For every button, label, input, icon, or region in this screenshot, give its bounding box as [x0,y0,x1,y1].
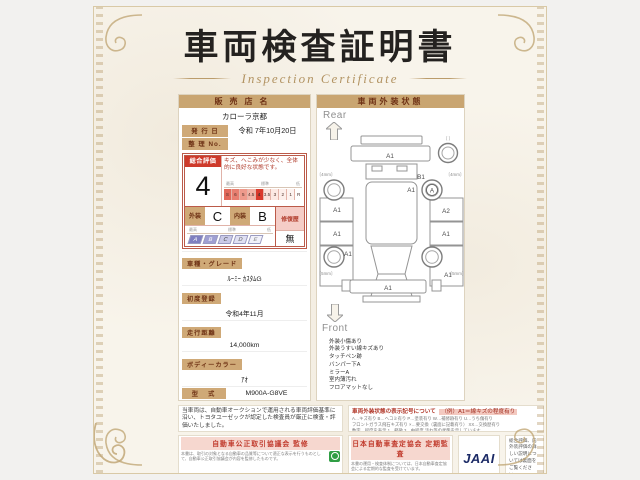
ext-int-grades: 外装 C 内装 B 最高 標準 低 [185,207,275,246]
legend-header: 車両外装状態の表示記号について （例）A1＝線キズの程度有り [352,407,540,415]
field-row-model-code: 型 式 M900A-G8VE [182,386,307,401]
corner-flourish-icon [496,423,542,469]
ornate-border-left [96,7,103,473]
evaluation-bottom: 外装 C 内装 B 最高 標準 低 [185,206,304,246]
jaai-text-row: 本書の運用・検査体制については、日本自動車査定協会による定期的な監査を受けていま… [351,461,450,473]
subtitle-row: Inspection Certificate [94,71,546,87]
fair-trade-council-block: 自動車公正取引協議会 監修 本書は、取引の対象となる自動車の品質等について適正な… [178,435,343,475]
front-label: Front [322,323,348,334]
grade-scale-cell: R [294,189,302,200]
diagram-marker: A1 [386,153,394,160]
letter-scale-cell: C [218,235,234,244]
exterior-note: タッチペン跡 [329,354,384,362]
field-label: ボディーカラー [182,359,242,370]
field-value: ｱｵ [182,374,307,384]
overall-grade-cell: 総合評価 4 [185,156,222,206]
issue-date-value: 令和 7年10月20日 [228,126,307,136]
scale-label-high: 最高 [189,227,197,233]
jaai-logo: JAAI [463,451,495,466]
headrest-shape [397,166,407,171]
exterior-note: バンパー下A [329,362,384,370]
evaluation-detail: キズ、へこみが少なく、全体的に良好な状態です。 最高 標準 低 S 6 5 4.… [222,156,304,206]
bottom-row-2: 自動車公正取引協議会 監修 本書は、取引の対象となる自動車の品質等について適正な… [178,435,544,475]
jaai-logo-box: JAAI [458,435,500,475]
scale-label-low: 低 [267,227,271,233]
corner-flourish-icon [98,11,144,57]
grade-scale-labels: 最高 標準 低 [224,181,302,188]
field-label: 型 式 [182,388,226,399]
grade-scale: S 6 5 4.5 4 3.5 3 2 1 R [224,189,302,200]
rear-label: Rear [323,110,347,121]
grade-scale-cell: S [224,189,231,200]
field-value: 令和4年11月 [182,308,307,318]
exterior-header: 車両外装状態 [317,95,464,108]
grade-scale-cell: 5 [239,189,247,200]
windshield-shape [371,246,412,274]
diagram-marker: A1 [407,187,415,194]
interior-grade: B [250,207,275,225]
dealer-header: 販売店名 [179,95,310,108]
diagram-marker: A1 [442,231,450,238]
letter-scale-cell: B [203,235,219,244]
car-top-view-svg: A1 〔 〕 〔4mm〕 〔4mm〕 B1 A1 A A2 A1 A1 A1 A… [317,134,465,318]
council-text-row: 本書は、取引の対象となる自動車の品質等について適正な表示を行うものとして、自動車… [181,451,340,463]
car-diagram: Rear [317,108,464,401]
page-subtitle: Inspection Certificate [231,71,408,87]
scale-label-mid: 標準 [261,181,269,187]
diagram-marker: A2 [442,208,450,215]
jaai-text: 本書の運用・検査体制については、日本自動車査定協会による定期的な監査を受けていま… [351,461,450,473]
dealer-name: カローラ京都 [179,108,310,124]
ext-int-row: 外装 C 内装 B [185,207,275,226]
green-seal-icon [329,451,340,462]
field-label: 初度登録 [182,293,221,304]
panels-row: 販売店名 カローラ京都 発 行 日 令和 7年10月20日 整 理 No. 総合… [94,94,546,401]
exterior-note: フロアマットなし [329,385,384,393]
exterior-condition-panel: 車両外装状態 Rear [316,94,465,401]
letter-scale: A B C D E [187,235,273,244]
repair-history-cell: 修復歴 無 [275,207,304,246]
repair-history-label: 修復歴 [276,207,304,230]
interior-label: 内装 [230,207,250,225]
field-label: 車種・グレード [182,258,242,269]
subtitle-ornament-left [173,78,231,79]
diagram-marker: A1 [384,285,392,292]
field-label: 走行距離 [182,327,221,338]
front-bumper-end-shape [432,280,441,291]
field-value: M900A-G8VE [226,390,307,397]
evaluation-box-inner: 総合評価 4 キズ、へこみが少なく、全体的に良好な状態です。 最高 標準 低 [184,155,305,247]
field-row-model-grade: 車種・グレード ﾙｰﾐｰ ｶｽﾀﾑG [182,251,307,286]
letter-scale-cell: A [188,235,204,244]
legend-example: （例）A1＝線キズの程度有り [439,409,517,415]
repair-history-value: 無 [276,230,304,246]
exterior-note: 外装うすい線キズあり [329,346,384,354]
roof-shape [361,136,422,144]
arrow-down-icon [327,304,343,322]
grade-scale-cell-selected: 4 [255,189,263,200]
evaluation-top: 総合評価 4 キズ、へこみが少なく、全体的に良好な状態です。 最高 標準 低 [185,156,304,206]
exterior-label: 外装 [185,207,205,225]
field-value: ﾙｰﾐｰ ｶｽﾀﾑG [182,273,307,283]
diagram-marker: 〔4mm〕 [446,172,465,177]
ref-no-label: 整 理 No. [182,138,228,150]
field-value: 14,000km [182,342,307,349]
front-lower-bar-shape [363,296,420,302]
grade-scale-cell: 2 [278,189,286,200]
issue-date-label: 発 行 日 [182,125,228,137]
vehicle-fields: 車種・グレード ﾙｰﾐｰ ｶｽﾀﾑG 初度登録 令和4年11月 走行距離 14,… [179,251,310,401]
page-title: 車両検査証明書 [94,29,546,68]
legend-title: 車両外装状態の表示記号について [352,409,436,415]
swirl-flourish-icon [93,421,128,469]
field-row-first-registration: 初度登録 令和4年11月 [182,285,307,320]
diagram-marker: B1 [417,174,425,181]
ornate-border-right [537,7,544,473]
evaluation-box: 総合評価 4 キズ、へこみが少なく、全体的に良好な状態です。 最高 標準 低 [182,153,307,249]
grade-scale-cell: 3.5 [263,189,271,200]
diagram-marker: A1 [333,231,341,238]
exterior-grade: C [205,207,230,225]
corner-flourish-icon [496,11,542,57]
scale-label-mid: 標準 [228,227,236,233]
vehicle-info-panel: 販売店名 カローラ京都 発 行 日 令和 7年10月20日 整 理 No. 総合… [178,94,311,401]
overall-grade-value: 4 [185,167,221,206]
subtitle-ornament-right [409,78,467,79]
grade-scale-cell: 3 [270,189,278,200]
jaai-audit-band: 日本自動車査定協会 定期監査 [351,437,450,460]
diagram-marker: 〔5mm〕 [317,271,335,276]
fair-trade-council-band: 自動車公正取引協議会 監修 [181,437,340,450]
jaai-audit-block: 日本自動車査定協会 定期監査 本書の運用・検査体制については、日本自動車査定協会… [348,435,453,475]
field-row-mileage: 走行距離 14,000km [182,320,307,352]
issue-date-row: 発 行 日 令和 7年10月20日 [182,125,307,137]
letter-scale-cell: E [248,235,264,244]
certificate-sheet: 車両検査証明書 Inspection Certificate 販売店名 カローラ… [93,6,547,474]
bottom-area: 当車両は、自動車オークションで運用される車両評価基準に沿い、トヨタユーゼックが認… [94,405,546,475]
scale-label-low: 低 [296,181,300,187]
letter-scale-block: 最高 標準 低 A B C D E [185,226,275,246]
overall-grade-header: 総合評価 [185,156,221,167]
grade-scale-cell: 6 [231,189,239,200]
ref-no-row: 整 理 No. [182,138,307,150]
diagram-marker: 〔5mm〕 [448,271,465,276]
scale-label-high: 最高 [226,181,234,187]
letter-scale-labels: 最高 標準 低 [187,227,273,234]
diagram-marker: 〔4mm〕 [317,172,335,177]
letter-scale-cell: D [233,235,249,244]
headrest-shape [372,166,382,171]
exterior-notes: 外装小傷あり 外装うすい線キズあり タッチペン跡 バンパー下A ミラーA 室内薄… [329,339,384,394]
grade-scale-cell: 4.5 [247,189,255,200]
diagram-marker: A1 [344,251,352,258]
council-text: 本書は、取引の対象となる自動車の品質等について適正な表示を行うものとして、自動車… [181,451,327,463]
bottom-row-1: 当車両は、自動車オークションで運用される車両評価基準に沿い、トヨタユーゼックが認… [178,405,544,432]
diagram-marker: 〔 〕 [443,136,453,141]
inspection-disclaimer: 当車両は、自動車オークションで運用される車両評価基準に沿い、トヨタユーゼックが認… [178,405,343,432]
evaluation-comment: キズ、へこみが少なく、全体的に良好な状態です。 [224,158,302,181]
grade-scale-cell: 1 [286,189,294,200]
field-row-body-color: ボディーカラー ｱｵ [182,351,307,386]
diagram-marker: A1 [333,207,341,214]
